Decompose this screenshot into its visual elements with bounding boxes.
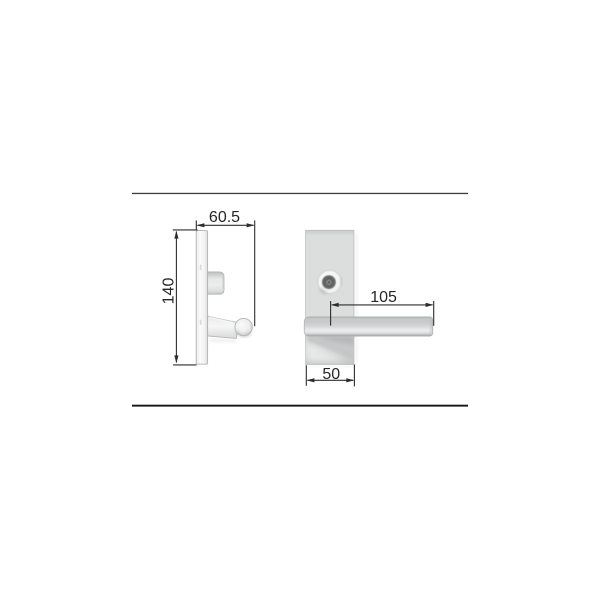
svg-text:105: 105: [370, 289, 397, 306]
svg-text:60.5: 60.5: [209, 209, 240, 226]
svg-text:140: 140: [161, 278, 178, 305]
